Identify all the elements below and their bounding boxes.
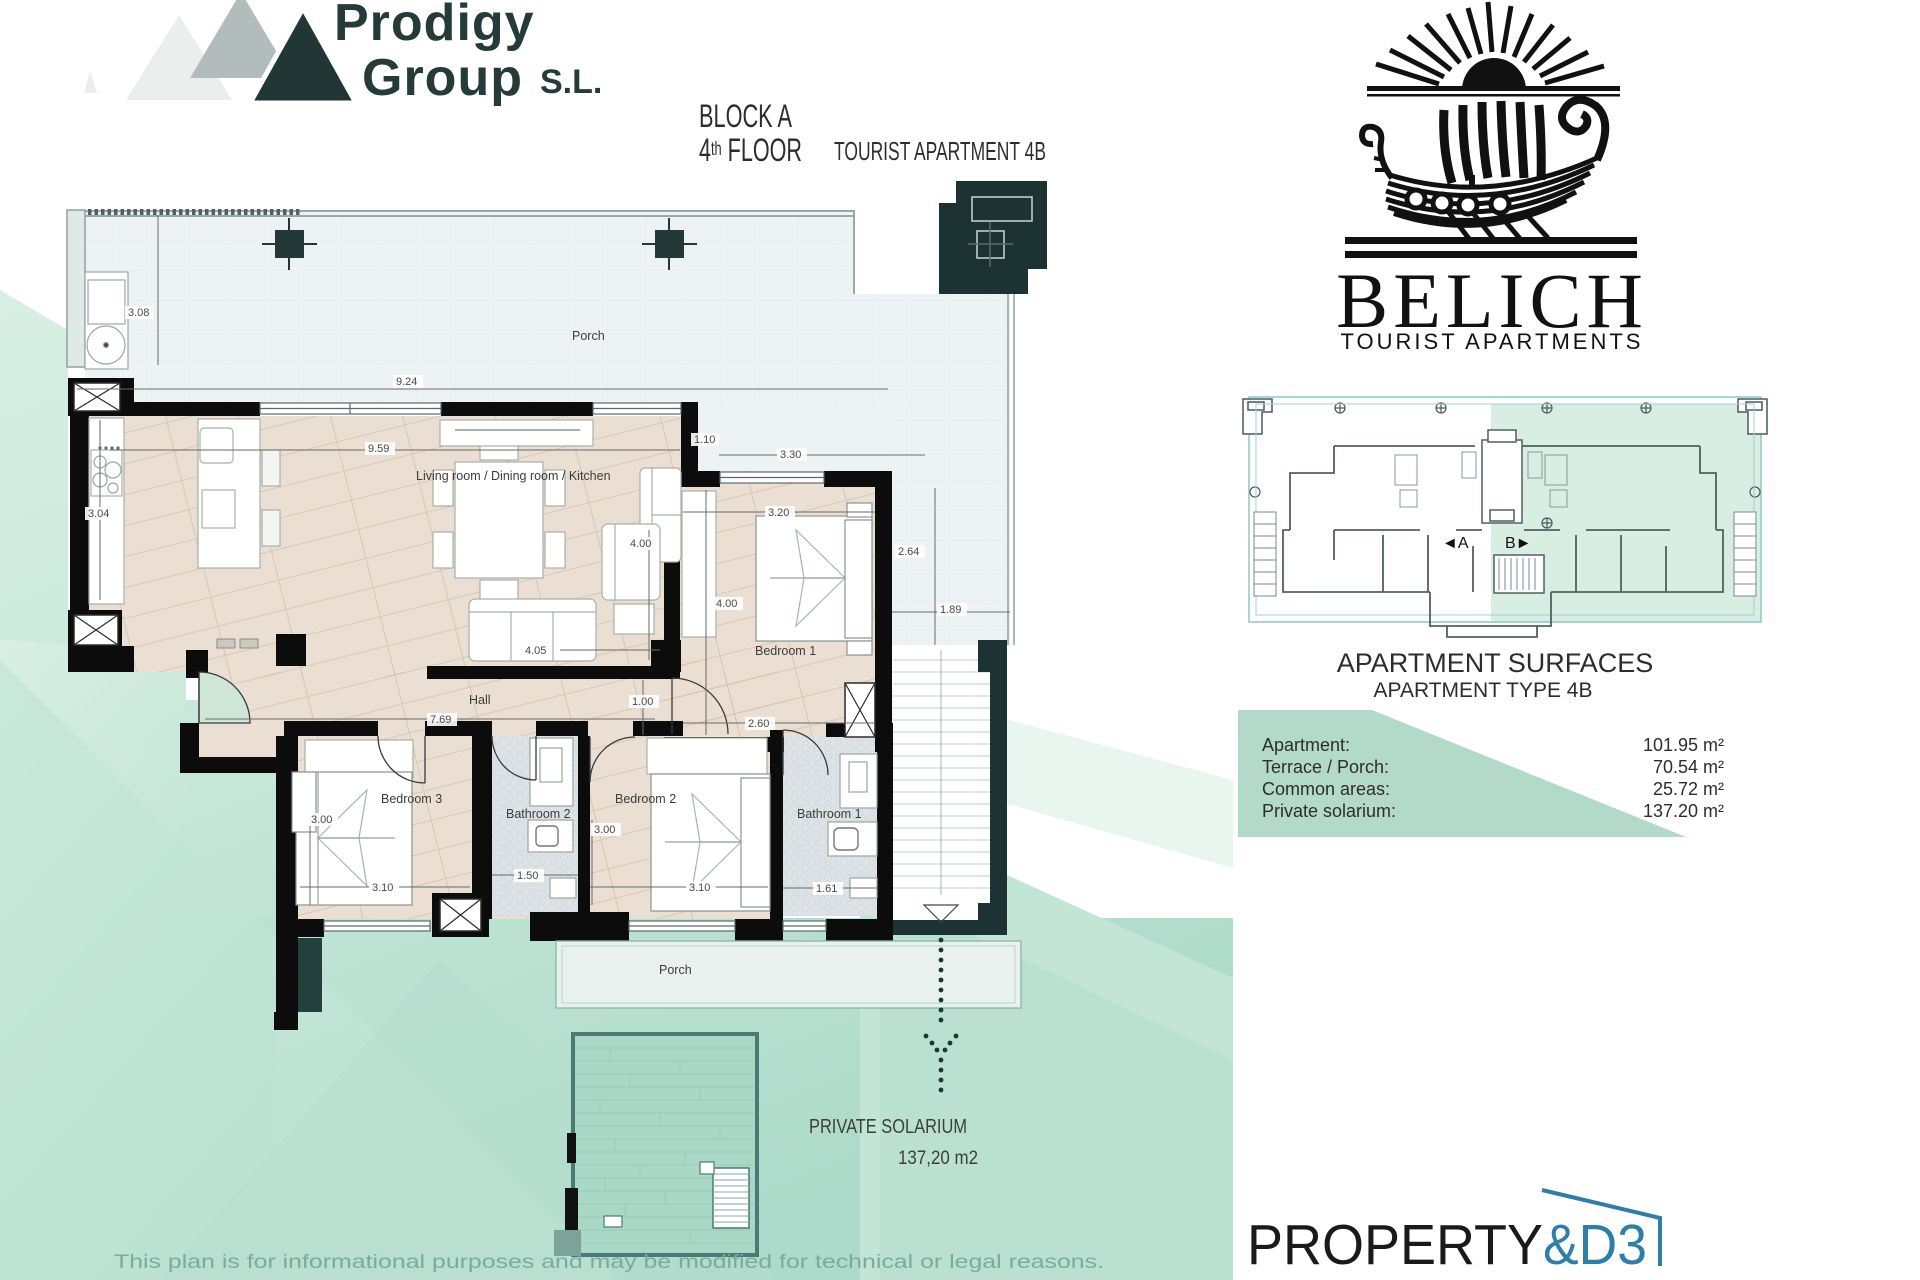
svg-text:Porch: Porch: [572, 329, 605, 343]
svg-text:3.10: 3.10: [372, 882, 393, 894]
svg-text:4.00: 4.00: [716, 598, 737, 610]
svg-text:Bedroom 2: Bedroom 2: [615, 792, 676, 806]
svg-text:Apartment:: Apartment:: [1262, 735, 1350, 755]
svg-text:Common areas:: Common areas:: [1262, 779, 1390, 799]
svg-text:3.00: 3.00: [594, 824, 615, 836]
svg-text:4.00: 4.00: [630, 538, 651, 550]
svg-text:APARTMENT TYPE 4B: APARTMENT TYPE 4B: [1373, 679, 1592, 702]
svg-text:2.64: 2.64: [898, 546, 919, 558]
svg-text:◄A: ◄A: [1442, 535, 1469, 552]
svg-text:137.20 m²: 137.20 m²: [1643, 801, 1724, 821]
svg-text:Bedroom 1: Bedroom 1: [755, 644, 816, 658]
svg-text:Private solarium:: Private solarium:: [1262, 801, 1396, 821]
svg-text:1.61: 1.61: [816, 883, 837, 895]
svg-text:TOURIST APARTMENT 4B: TOURIST APARTMENT 4B: [834, 136, 1046, 166]
svg-text:1.89: 1.89: [940, 604, 961, 616]
svg-text:4.05: 4.05: [525, 645, 546, 657]
svg-text:Terrace / Porch:: Terrace / Porch:: [1262, 757, 1389, 777]
svg-text:1.00: 1.00: [632, 696, 653, 708]
svg-text:9.24: 9.24: [396, 376, 417, 388]
svg-text:7.69: 7.69: [430, 714, 451, 726]
svg-text:1.10: 1.10: [694, 434, 715, 446]
svg-text:BLOCK A: BLOCK A: [699, 98, 792, 134]
svg-text:B►: B►: [1505, 535, 1532, 552]
svg-text:Prodigy: Prodigy: [334, 0, 535, 52]
svg-text:Group: Group: [362, 49, 523, 107]
svg-text:Bathroom 2: Bathroom 2: [506, 807, 571, 821]
svg-text:Bathroom 1: Bathroom 1: [797, 807, 862, 821]
svg-text:This plan is for informational: This plan is for informational purposes …: [114, 1251, 1104, 1273]
svg-text:25.72 m²: 25.72 m²: [1653, 779, 1724, 799]
svg-text:&D3: &D3: [1543, 1213, 1647, 1277]
svg-text:S.L.: S.L.: [540, 63, 602, 101]
svg-text:70.54 m²: 70.54 m²: [1653, 757, 1724, 777]
svg-text:Porch: Porch: [659, 963, 692, 977]
svg-text:3.20: 3.20: [768, 507, 789, 519]
svg-text:137,20 m2: 137,20 m2: [898, 1148, 978, 1169]
svg-text:TOURIST APARTMENTS: TOURIST APARTMENTS: [1341, 329, 1644, 354]
svg-text:PRIVATE SOLARIUM: PRIVATE SOLARIUM: [809, 1116, 967, 1138]
svg-text:3.04: 3.04: [88, 508, 109, 520]
svg-text:Living room / Dining room / Ki: Living room / Dining room / Kitchen: [416, 469, 611, 483]
svg-text:PROPERTY: PROPERTY: [1247, 1213, 1543, 1277]
svg-text:3.00: 3.00: [311, 814, 332, 826]
svg-text:APARTMENT SURFACES: APARTMENT SURFACES: [1337, 648, 1654, 678]
svg-text:3.10: 3.10: [689, 882, 710, 894]
svg-text:3.08: 3.08: [128, 307, 149, 319]
svg-text:1.50: 1.50: [517, 870, 538, 882]
svg-text:9.59: 9.59: [368, 443, 389, 455]
svg-text:2.60: 2.60: [748, 718, 769, 730]
svg-text:3.30: 3.30: [780, 449, 801, 461]
svg-text:101.95 m²: 101.95 m²: [1643, 735, 1724, 755]
svg-text:Bedroom 3: Bedroom 3: [381, 792, 442, 806]
svg-text:Hall: Hall: [469, 693, 491, 707]
